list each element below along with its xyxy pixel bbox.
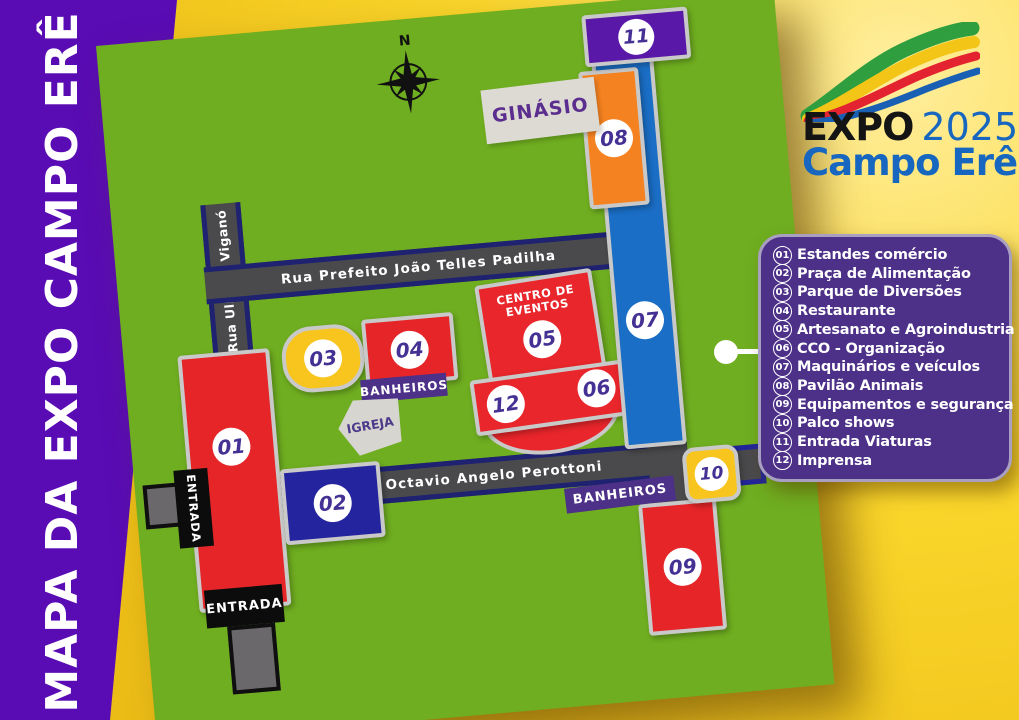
legend-number-badge: 01: [773, 246, 792, 265]
callout-dot: [714, 340, 738, 364]
compass-rose-icon: [373, 46, 445, 118]
block-number-badge: 05: [521, 317, 564, 360]
block-number-badge: 10: [693, 456, 730, 493]
igreja-label: IGREJA: [333, 390, 406, 458]
legend-panel: 01 Estandes comércio 02 Praça de Aliment…: [758, 234, 1012, 482]
entrance-label-south: ENTRADA: [204, 584, 285, 629]
legend-item-05: 05 Artesanato e Agroindustria: [773, 321, 1003, 339]
page-title: MAPA DA EXPO CAMPO ERÊ: [16, 12, 108, 712]
block-09-equipamentos-seguranca: 09: [638, 498, 727, 636]
block-number-badge: 03: [303, 338, 344, 379]
block-number-badge: 08: [593, 118, 634, 159]
legend-number-badge: 02: [773, 264, 792, 283]
legend-number-badge: 11: [773, 433, 792, 452]
legend-item-11: 11 Entrada Viaturas: [773, 433, 1003, 451]
logo-city-text: Campo Erê: [802, 144, 1018, 181]
legend-item-10: 10 Palco shows: [773, 414, 1003, 432]
block-number-badge: 09: [662, 546, 703, 587]
centro-eventos-title: CENTRO DE EVENTOS: [496, 283, 577, 321]
legend-item-12: 12 Imprensa: [773, 452, 1003, 470]
block-02-praca-alimentacao: 02: [280, 461, 386, 545]
legend-number-badge: 06: [773, 339, 792, 358]
legend-item-06: 06 CCO - Organização: [773, 340, 1003, 358]
block-number-badge: 04: [389, 329, 430, 370]
legend-item-01: 01 Estandes comércio: [773, 246, 1003, 264]
legend-number-badge: 03: [773, 283, 792, 302]
entrance-text: ENTRADA: [206, 595, 284, 617]
legend-item-08: 08 Pavilão Animais: [773, 377, 1003, 395]
legend-item-03: 03 Parque de Diversões: [773, 283, 1003, 301]
entrance-text: ENTRADA: [184, 474, 204, 543]
block-number-badge: 06: [575, 367, 618, 410]
legend-number-badge: 10: [773, 414, 792, 433]
legend-number-badge: 09: [773, 395, 792, 414]
block-number-badge: 02: [312, 483, 353, 524]
legend-item-07: 07 Maquinários e veículos: [773, 358, 1003, 376]
logo: EXPO 2025 Campo Erê: [802, 108, 1018, 181]
legend-item-04: 04 Restaurante: [773, 302, 1003, 320]
legend-number-badge: 12: [773, 451, 792, 470]
entrance-stub-south: [227, 623, 281, 695]
block-11-entrada-viaturas: 11: [581, 6, 691, 67]
block-10-palco-shows: 10: [681, 444, 742, 505]
legend-number-badge: 05: [773, 320, 792, 339]
ginasio-label: GINÁSIO: [480, 77, 600, 144]
legend-number-badge: 04: [773, 302, 792, 321]
block-number-badge: 12: [484, 383, 527, 426]
legend-number-badge: 07: [773, 358, 792, 377]
block-number-badge: 07: [624, 300, 665, 341]
legend-item-02: 02 Praça de Alimentação: [773, 265, 1003, 283]
block-03-parque-diversoes: 03: [279, 322, 366, 395]
compass-rose: N: [368, 30, 448, 136]
legend-number-badge: 08: [773, 377, 792, 396]
block-number-badge: 11: [617, 17, 656, 56]
legend-item-09: 09 Equipamentos e segurança: [773, 396, 1003, 414]
expo-map-poster: MAPA DA EXPO CAMPO ERÊ Rua Ulisses Vigan…: [0, 0, 1019, 720]
block-number-badge: 01: [211, 426, 252, 467]
compass-north-label: N: [398, 33, 411, 50]
entrance-label-west: ENTRADA: [173, 468, 214, 549]
